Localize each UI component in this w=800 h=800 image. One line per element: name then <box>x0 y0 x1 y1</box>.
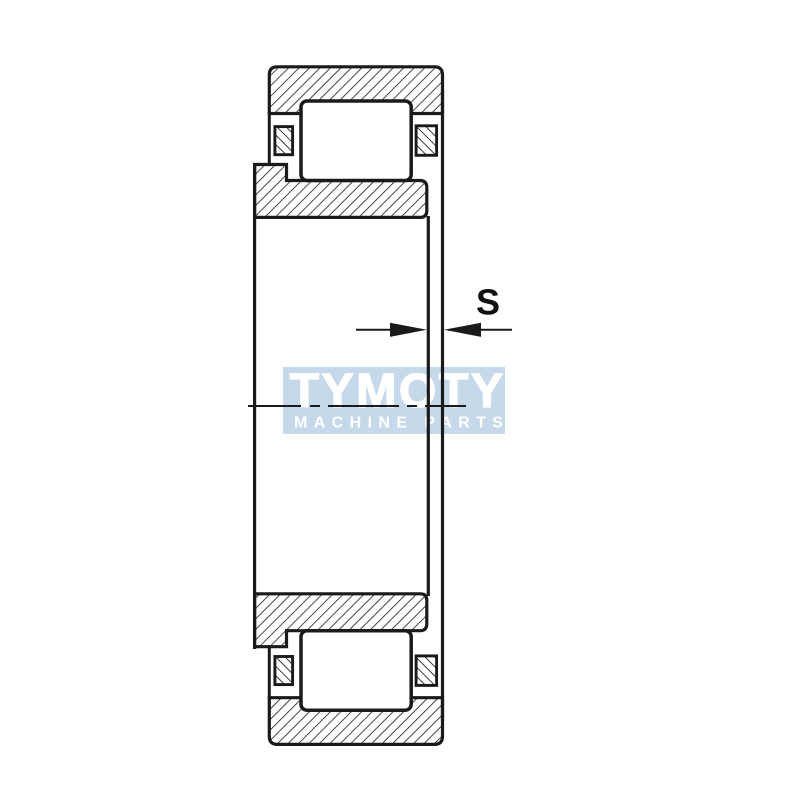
svg-text:TYMOTY: TYMOTY <box>290 364 506 418</box>
svg-text:MACHINE PARTS: MACHINE PARTS <box>294 415 509 432</box>
svg-text:S: S <box>476 281 500 322</box>
